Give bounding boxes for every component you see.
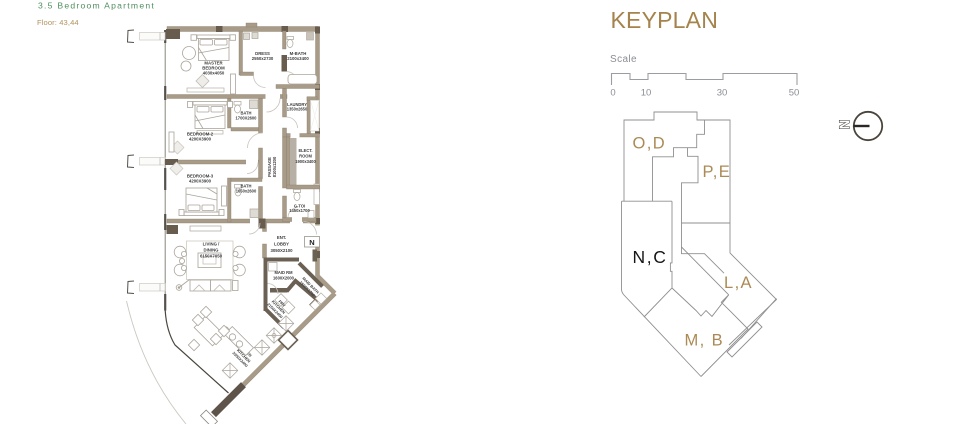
svg-text:L,A: L,A — [724, 274, 753, 292]
svg-text:4200X3900: 4200X3900 — [189, 137, 212, 142]
svg-text:N: N — [837, 120, 852, 130]
svg-text:4030x4050: 4030x4050 — [203, 70, 225, 75]
svg-text:1650x2600: 1650x2600 — [236, 189, 257, 194]
svg-text:0: 0 — [610, 88, 615, 99]
svg-text:M, B: M, B — [685, 331, 725, 349]
svg-text:8100x1200: 8100x1200 — [272, 156, 277, 177]
svg-text:2550x2730: 2550x2730 — [252, 56, 274, 61]
svg-text:1900x3400: 1900x3400 — [295, 159, 316, 164]
svg-text:10: 10 — [641, 88, 652, 99]
svg-text:ROOM: ROOM — [299, 154, 312, 159]
svg-text:3.5 Bedroom Apartment: 3.5 Bedroom Apartment — [38, 0, 155, 10]
svg-text:4200X3900: 4200X3900 — [189, 179, 212, 184]
svg-text:ELECT.: ELECT. — [298, 148, 312, 153]
svg-text:2100x3400: 2100x3400 — [287, 56, 309, 61]
svg-text:1350x2650: 1350x2650 — [287, 107, 308, 112]
svg-text:ENT.: ENT. — [277, 235, 286, 240]
svg-text:MAID RM: MAID RM — [275, 270, 294, 275]
svg-text:N: N — [309, 238, 314, 247]
svg-text:Scale: Scale — [610, 54, 637, 65]
svg-text:Floor: 43,44: Floor: 43,44 — [37, 18, 79, 27]
svg-text:1600X2000: 1600X2000 — [273, 276, 295, 281]
svg-text:50: 50 — [789, 88, 800, 99]
svg-text:1450x1700: 1450x1700 — [289, 208, 310, 213]
svg-text:KEYPLAN: KEYPLAN — [611, 7, 719, 33]
svg-text:LIVING /: LIVING / — [203, 242, 221, 247]
svg-text:DINING: DINING — [203, 248, 219, 253]
svg-text:P,E: P,E — [703, 163, 732, 181]
svg-text:30: 30 — [717, 88, 728, 99]
svg-text:3050X2100: 3050X2100 — [271, 248, 294, 253]
svg-text:O,D: O,D — [633, 134, 667, 152]
svg-text:LOBBY: LOBBY — [274, 242, 289, 247]
svg-text:N,C: N,C — [633, 247, 668, 267]
svg-text:1700X2600: 1700X2600 — [236, 116, 258, 121]
svg-text:6150X7050: 6150X7050 — [200, 254, 223, 259]
